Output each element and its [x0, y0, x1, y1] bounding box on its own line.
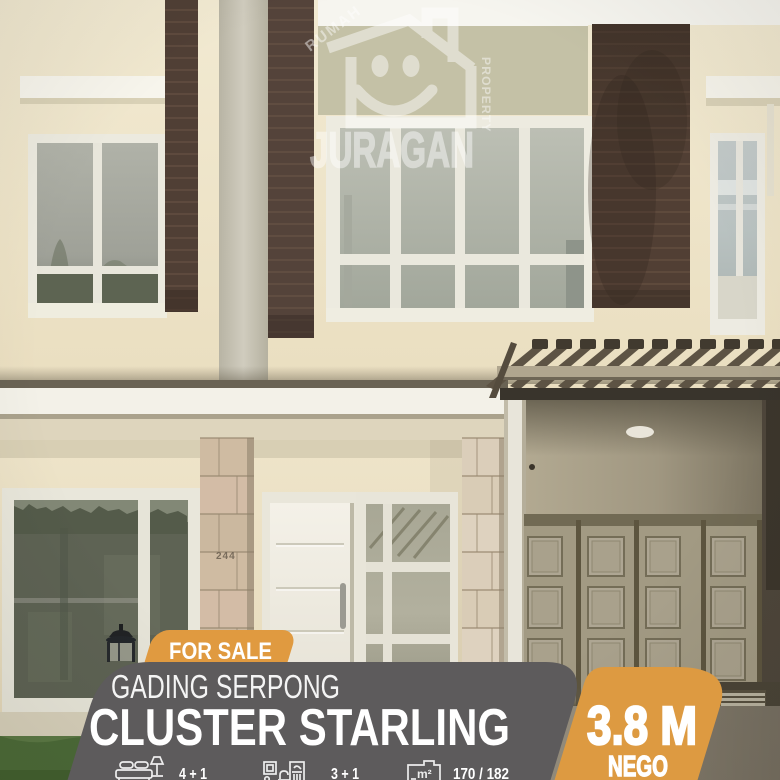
svg-text:3 + 1: 3 + 1	[331, 766, 359, 780]
svg-text:170 / 182: 170 / 182	[453, 766, 509, 780]
svg-text:CLUSTER STARLING: CLUSTER STARLING	[89, 699, 510, 757]
svg-text:NEGO: NEGO	[608, 751, 668, 780]
svg-text:FOR SALE: FOR SALE	[169, 638, 272, 665]
svg-text:4 + 1: 4 + 1	[179, 766, 207, 780]
svg-text:3.8 M: 3.8 M	[587, 696, 697, 756]
svg-text:JURAGAN: JURAGAN	[310, 122, 474, 178]
svg-text:PROPERTY: PROPERTY	[479, 57, 493, 133]
svg-text:m²: m²	[417, 767, 432, 780]
